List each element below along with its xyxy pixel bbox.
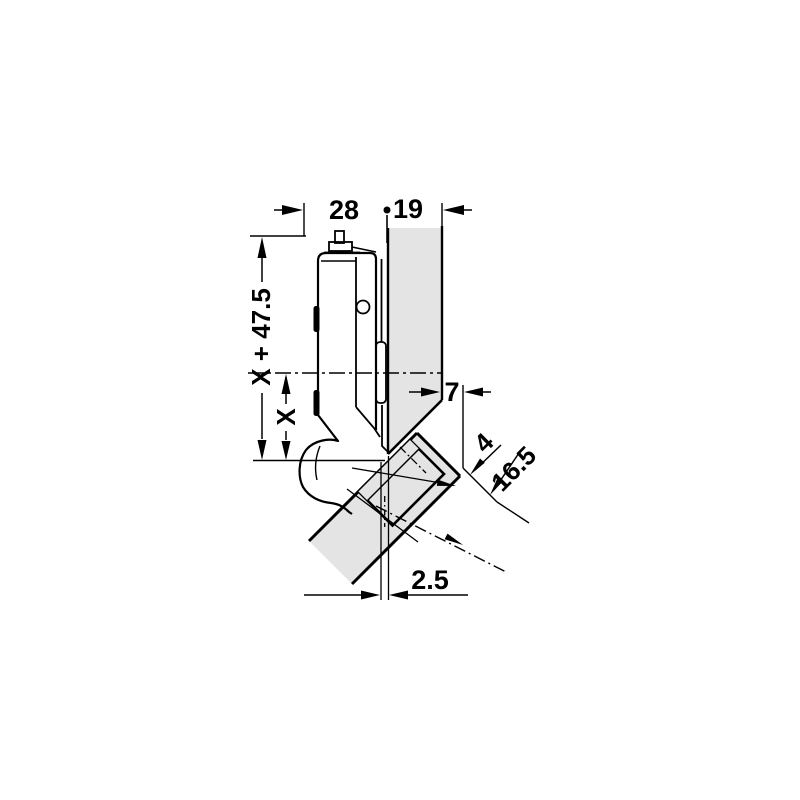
side-panel [388, 203, 442, 454]
dim-25-arrow-left [361, 591, 380, 600]
dim-19-label: 19 [393, 194, 423, 224]
dim-19-arrow [443, 205, 464, 215]
dim-28-arrow [282, 205, 303, 215]
mounting-plate-slope [352, 247, 376, 252]
arm-screw-hole [357, 301, 370, 314]
door-panel-body [309, 433, 460, 584]
dim-x475-arrow-up [258, 237, 267, 258]
dim-165-counter-arrow [445, 534, 463, 545]
dim-4-arrow [470, 459, 485, 476]
arm-boss-inner-arc [316, 446, 320, 480]
dim-7-label: 7 [444, 377, 459, 407]
hinge-mounting-diagram: 28 19 X + 47.5 X 7 4 16.5 [0, 0, 800, 800]
arm-left-lug-lower [314, 390, 320, 416]
dim-x475-label: X + 47.5 [246, 288, 276, 386]
dim-x-arrow-up [282, 374, 291, 394]
dim-45deg: 4 16.5 [437, 427, 542, 545]
hinge-arm-outline [300, 253, 376, 514]
dim-x-arrow-down [282, 441, 291, 460]
dim-x-label: X [271, 408, 301, 426]
side-panel-body [388, 228, 442, 454]
door-panel [309, 433, 460, 584]
dim-left: X + 47.5 X [246, 237, 385, 461]
reference-dot [384, 207, 391, 214]
dim-25: 2.5 [304, 565, 468, 600]
extension-line-stub [497, 502, 529, 523]
dim-25-label: 2.5 [411, 565, 449, 595]
arm-left-lug-upper [314, 306, 320, 332]
diagram-canvas: 28 19 X + 47.5 X 7 4 16.5 [0, 0, 800, 800]
dim-28-label: 28 [329, 195, 359, 225]
dim-4-label: 4 [468, 427, 500, 459]
dim-x475-arrow-down [258, 440, 267, 460]
